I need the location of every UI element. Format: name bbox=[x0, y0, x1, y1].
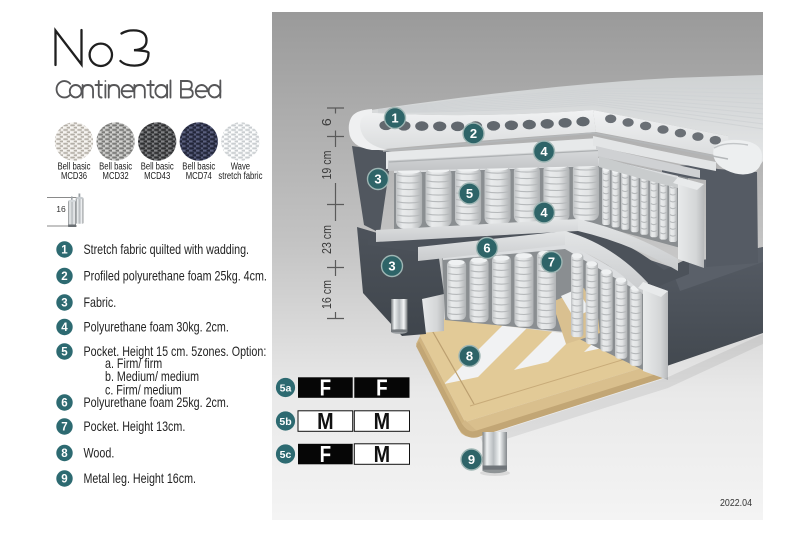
svg-text:M: M bbox=[374, 408, 391, 434]
svg-text:2: 2 bbox=[61, 271, 67, 283]
svg-text:1: 1 bbox=[61, 245, 68, 257]
svg-text:3: 3 bbox=[61, 298, 67, 310]
svg-text:5: 5 bbox=[61, 347, 68, 359]
svg-text:2: 2 bbox=[470, 126, 477, 141]
svg-text:4: 4 bbox=[540, 205, 548, 220]
svg-text:5c: 5c bbox=[280, 449, 292, 461]
svg-text:Stretch fabric quilted with wa: Stretch fabric quilted with wadding. bbox=[84, 241, 250, 257]
svg-text:7: 7 bbox=[61, 422, 67, 434]
svg-text:M: M bbox=[374, 441, 391, 467]
svg-text:M: M bbox=[317, 408, 334, 434]
svg-text:MCD32: MCD32 bbox=[103, 171, 129, 182]
svg-text:Metal leg. Height 16cm.: Metal leg. Height 16cm. bbox=[84, 470, 197, 486]
svg-text:MCD43: MCD43 bbox=[144, 171, 170, 182]
svg-text:4: 4 bbox=[540, 144, 548, 159]
svg-text:2022.04: 2022.04 bbox=[720, 497, 752, 509]
svg-text:F: F bbox=[320, 375, 332, 401]
svg-text:F: F bbox=[320, 441, 332, 467]
svg-text:5: 5 bbox=[466, 186, 473, 201]
svg-text:6: 6 bbox=[61, 398, 67, 410]
svg-text:Wood.: Wood. bbox=[84, 445, 115, 461]
svg-text:5a: 5a bbox=[280, 383, 292, 395]
svg-text:3: 3 bbox=[374, 172, 381, 187]
svg-text:Pocket. Height 13cm.: Pocket. Height 13cm. bbox=[84, 418, 186, 434]
svg-text:16: 16 bbox=[56, 204, 66, 214]
svg-text:9: 9 bbox=[61, 474, 67, 486]
svg-text:1: 1 bbox=[391, 111, 398, 126]
svg-text:c. Firm/ medium: c. Firm/ medium bbox=[105, 381, 182, 397]
svg-text:Polyurethane foam 30kg. 2cm.: Polyurethane foam 30kg. 2cm. bbox=[84, 319, 229, 335]
svg-text:Fabric.: Fabric. bbox=[84, 294, 117, 310]
svg-text:6: 6 bbox=[483, 241, 490, 256]
svg-text:19 cm: 19 cm bbox=[319, 151, 334, 180]
svg-text:F: F bbox=[376, 375, 388, 401]
svg-text:MCD36: MCD36 bbox=[61, 171, 87, 182]
svg-text:stretch fabric: stretch fabric bbox=[218, 171, 262, 182]
svg-text:8: 8 bbox=[466, 349, 473, 364]
svg-text:9: 9 bbox=[468, 452, 475, 467]
svg-text:MCD74: MCD74 bbox=[186, 171, 212, 182]
svg-text:6: 6 bbox=[319, 118, 334, 126]
svg-text:7: 7 bbox=[548, 255, 555, 270]
svg-text:3: 3 bbox=[388, 259, 395, 274]
svg-text:5b: 5b bbox=[279, 416, 291, 428]
svg-text:Profiled polyurethane foam 25k: Profiled polyurethane foam 25kg. 4cm. bbox=[84, 268, 267, 284]
svg-text:8: 8 bbox=[61, 448, 68, 460]
svg-text:16 cm: 16 cm bbox=[319, 280, 334, 309]
svg-text:4: 4 bbox=[61, 322, 68, 334]
svg-text:23 cm: 23 cm bbox=[319, 225, 334, 254]
